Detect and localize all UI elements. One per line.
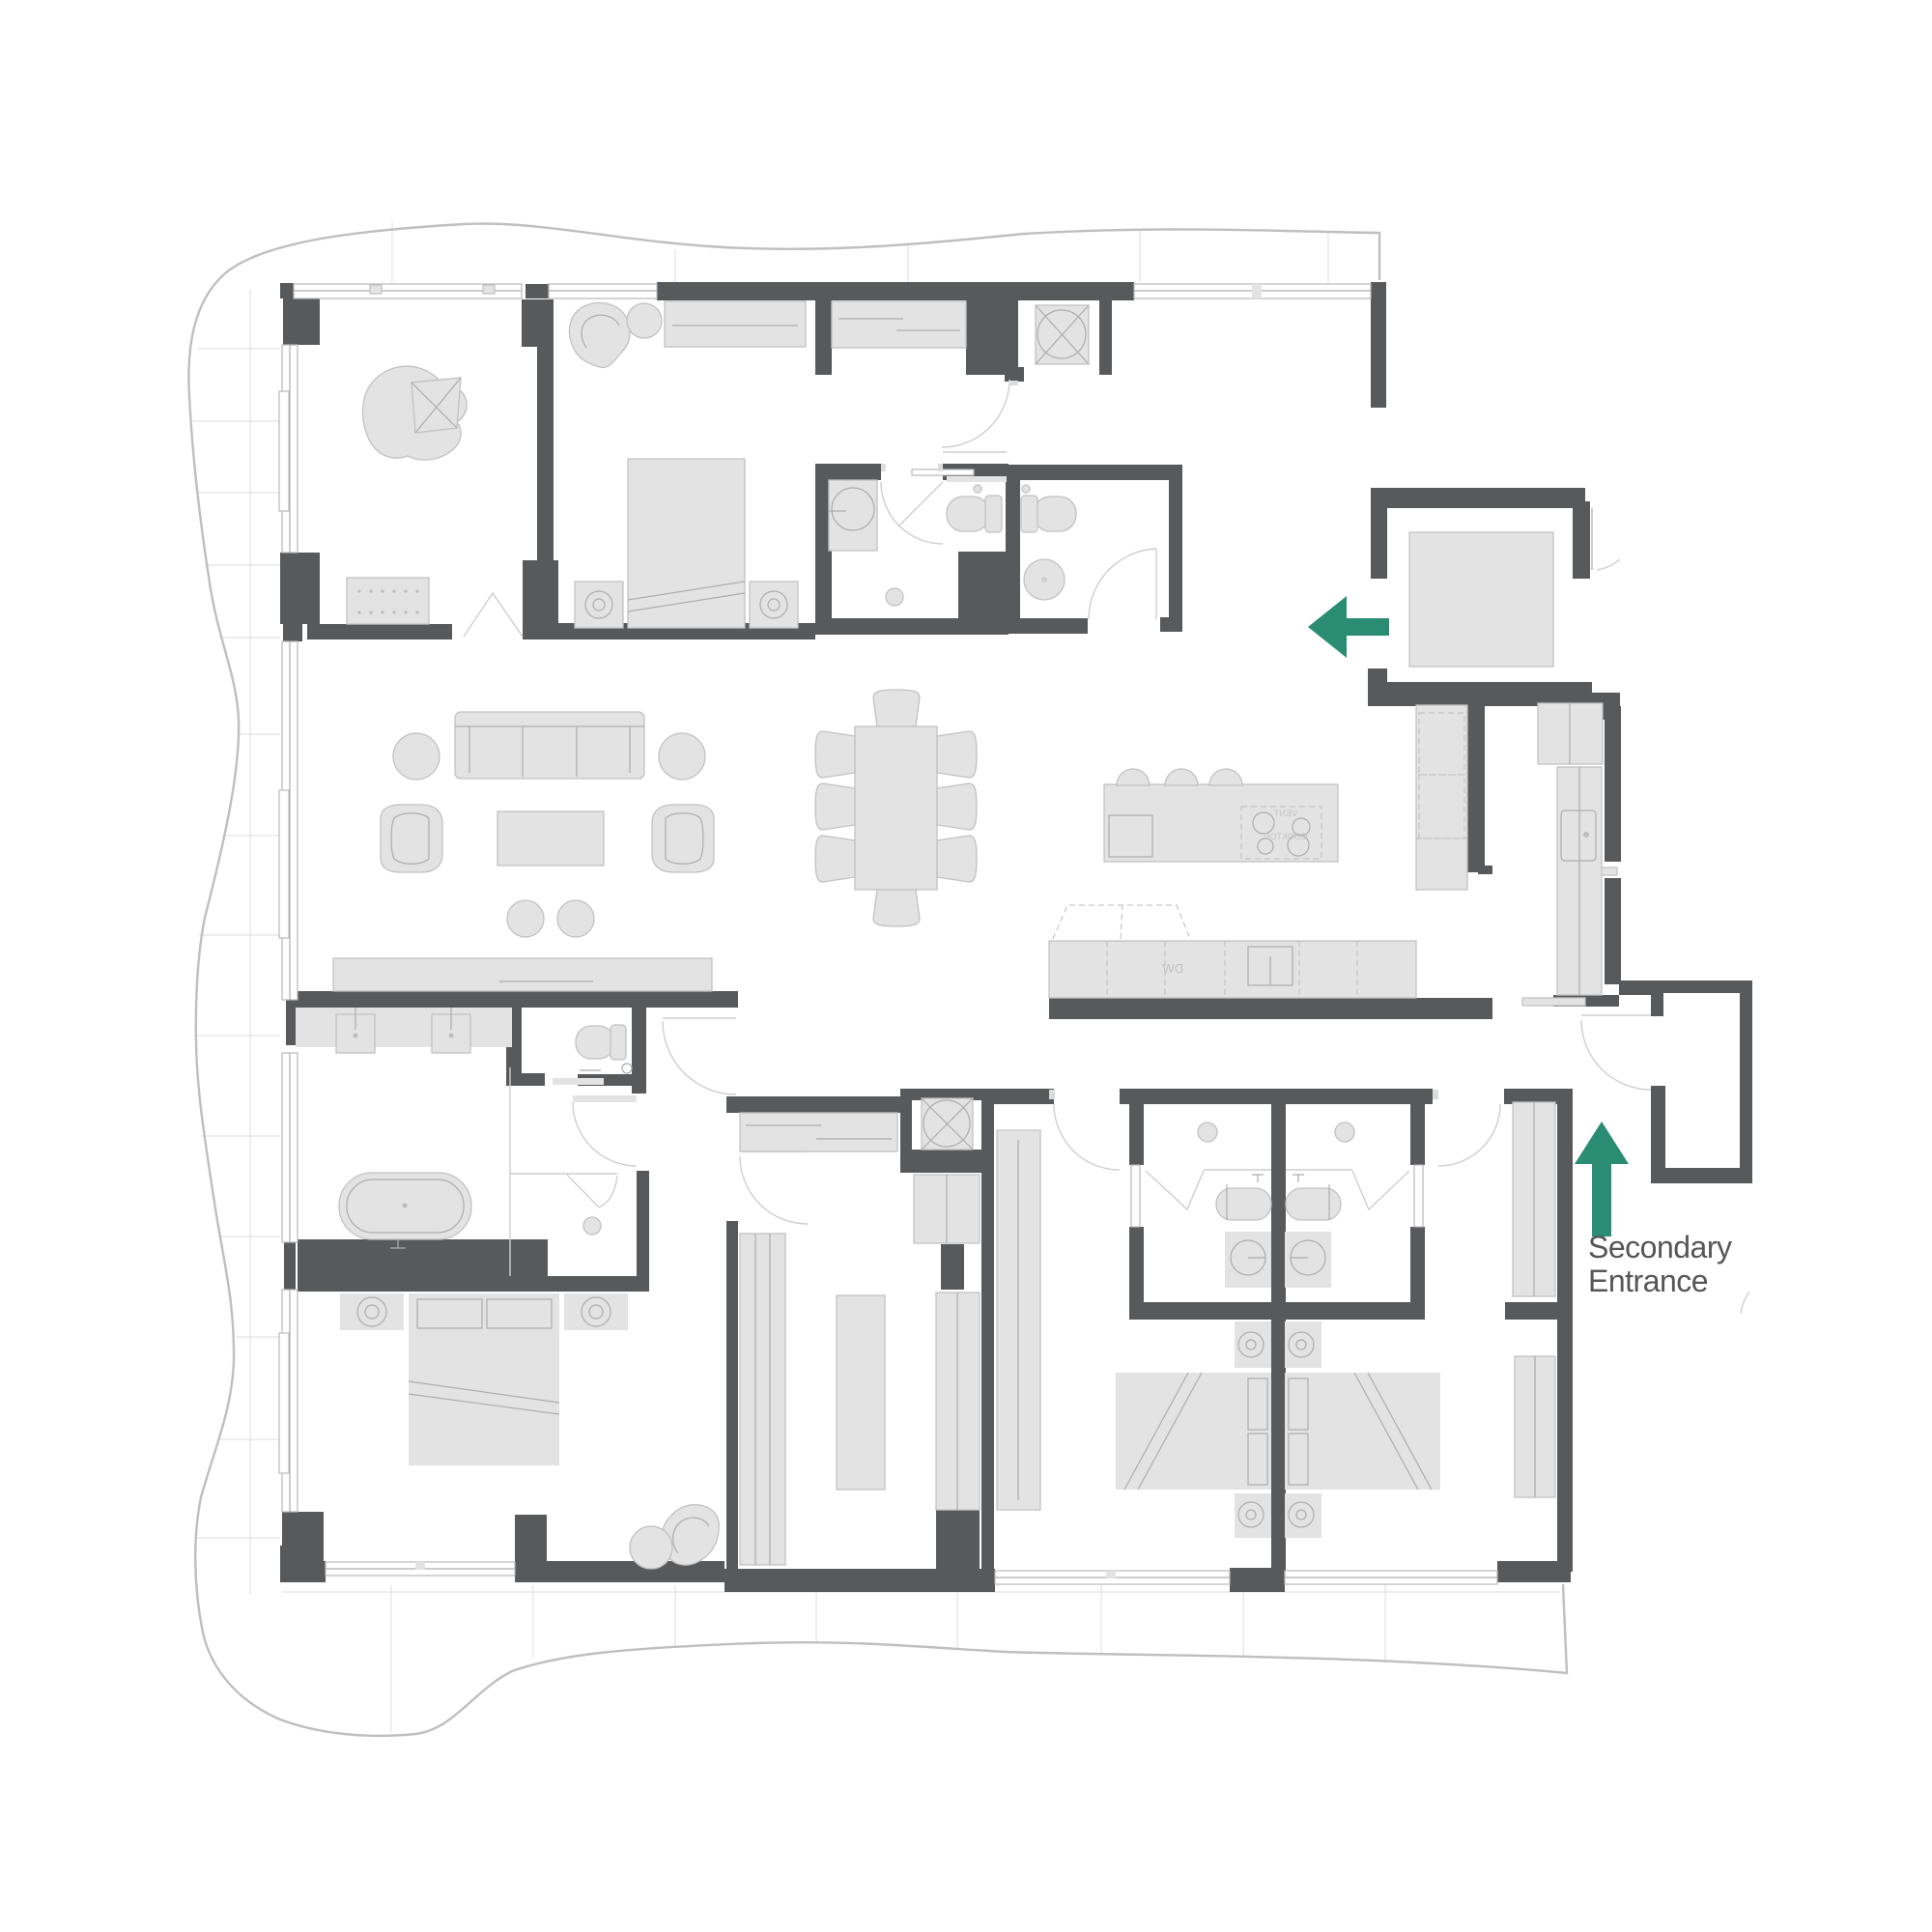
svg-text:Secondary: Secondary — [1588, 1230, 1732, 1264]
svg-text:COOKTOP: COOKTOP — [1264, 832, 1308, 841]
svg-text:DW: DW — [1162, 961, 1183, 976]
svg-text:Entrance: Entrance — [1588, 1264, 1708, 1298]
svg-text:VENT: VENT — [1274, 809, 1298, 818]
